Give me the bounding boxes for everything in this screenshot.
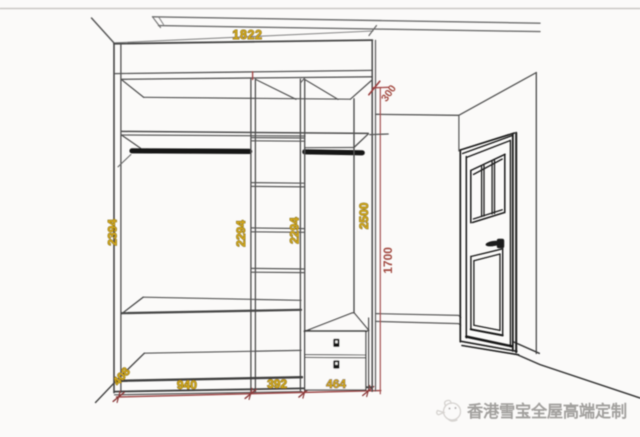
svg-text:2294: 2294 [288,217,302,244]
svg-text:1700: 1700 [381,247,395,274]
svg-text:香港雪宝全屋高端定制: 香港雪宝全屋高端定制 [467,402,627,421]
svg-text:300: 300 [379,83,399,104]
svg-text:2500: 2500 [357,202,371,229]
svg-text:2294: 2294 [234,220,248,247]
svg-text:392: 392 [267,377,287,391]
svg-text:1822: 1822 [232,28,262,42]
svg-text:2394: 2394 [105,219,119,246]
svg-text:940: 940 [177,378,197,392]
svg-text:464: 464 [326,377,346,391]
